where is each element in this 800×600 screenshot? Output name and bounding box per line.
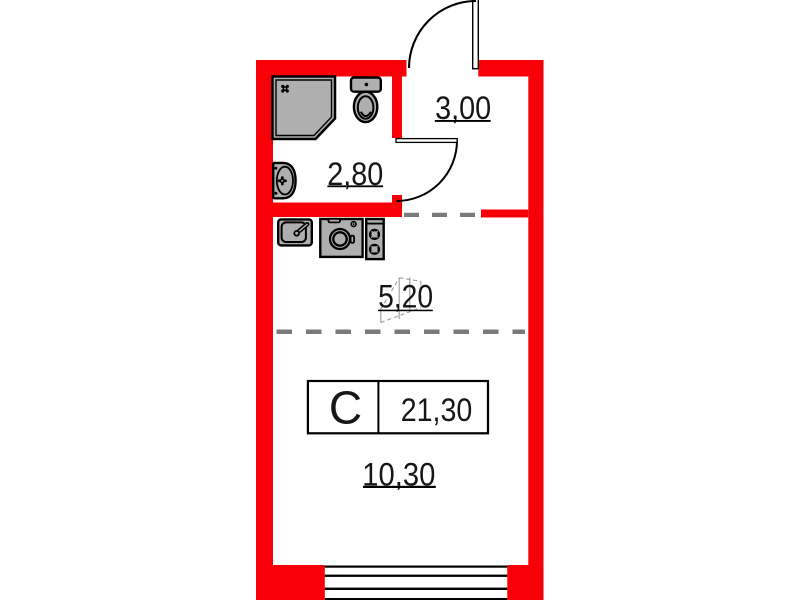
svg-text:C: C bbox=[329, 382, 362, 434]
svg-text:21,30: 21,30 bbox=[401, 392, 473, 428]
svg-text:5,20: 5,20 bbox=[378, 279, 433, 315]
